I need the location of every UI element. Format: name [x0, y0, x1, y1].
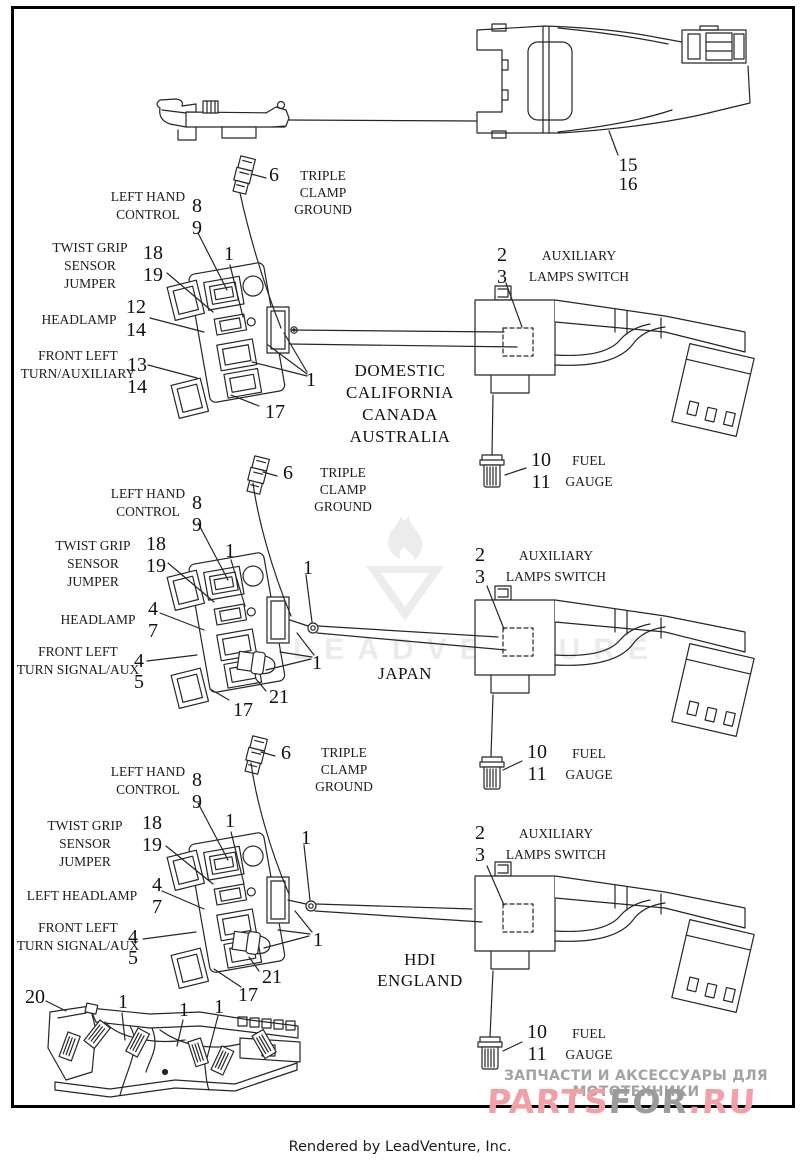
s1-bracket-callout-17: 17 [260, 401, 290, 423]
s3-left-headlamp-label: LEFT HEADLAMP [22, 887, 142, 905]
s2-pin-callout-1-right: 1 [300, 557, 316, 579]
s1-pin-callout-1-top: 1 [221, 243, 237, 265]
s2-left-hand-control-label: LEFT HAND CONTROL [104, 485, 192, 521]
s1-aux-callout-2-3: 2 3 [494, 244, 510, 288]
s2-headlamp-callout-4-7: 4 7 [142, 598, 164, 642]
s3-boot-callout-21: 21 [257, 966, 287, 988]
s2-aux-callout-2-3: 2 3 [472, 544, 488, 588]
logo-for-text: FOR [608, 1082, 690, 1121]
s2-aux-lamps-switch-label: AUXILIARY LAMPS SWITCH [500, 545, 612, 587]
s3-pin-callout-1-far: 1 [310, 929, 326, 951]
clamp-drawing [157, 99, 477, 140]
s2-triple-clamp-ground-callout: 6 [280, 462, 296, 484]
logo-ru-text: .RU [687, 1082, 757, 1121]
s2-headlamp-label: HEADLAMP [55, 611, 141, 629]
s1-control-callout-8-9: 8 9 [189, 195, 205, 239]
s2-turn-label: FRONT LEFT TURN SIGNAL/AUX [14, 643, 142, 679]
s2-jumper-callout-18-19: 18 19 [145, 533, 167, 577]
section-japan-drawing [147, 456, 754, 789]
s1-left-hand-control-label: LEFT HAND CONTROL [104, 188, 192, 224]
s3-aux-lamps-switch-label: AUXILIARY LAMPS SWITCH [500, 823, 612, 865]
s2-twist-grip-label: TWIST GRIP SENSOR JUMPER [49, 537, 137, 591]
s3-headlamp-callout-4-7: 4 7 [146, 874, 168, 918]
s2-turn-callout-4-5: 4 5 [128, 651, 150, 693]
s3-turn-callout-4-5: 4 5 [122, 927, 144, 969]
harness-pin-callout-1-b: 1 [176, 999, 192, 1021]
s2-pin-callout-1-far: 1 [309, 652, 325, 674]
s2-pin-callout-1-top: 1 [222, 540, 238, 562]
s3-region-label: HDI ENGLAND [365, 949, 475, 991]
s1-fuel-callout-10-11: 10 11 [528, 449, 554, 493]
s1-triple-clamp-ground-label: TRIPLE CLAMP GROUND [283, 167, 363, 218]
s1-jumper-callout-18-19: 18 19 [142, 242, 164, 286]
s3-aux-callout-2-3: 2 3 [472, 822, 488, 866]
s3-jumper-callout-18-19: 18 19 [141, 812, 163, 856]
render-credit: Rendered by LeadVenture, Inc. [0, 1139, 800, 1155]
s1-triple-clamp-ground-callout: 6 [266, 164, 282, 186]
harness-pin-callout-1-a: 1 [115, 991, 131, 1013]
s3-pin-callout-1-right: 1 [298, 827, 314, 849]
harness-pin-callout-1-c: 1 [211, 996, 227, 1018]
s1-aux-lamps-switch-label: AUXILIARY LAMPS SWITCH [523, 245, 635, 287]
s3-fuel-gauge-label: FUEL GAUGE [558, 1023, 620, 1065]
s1-region-label: DOMESTIC CALIFORNIA CANADA AUSTRALIA [330, 360, 470, 448]
s3-control-callout-8-9: 8 9 [189, 769, 205, 813]
s2-region-label: JAPAN [355, 663, 455, 685]
s2-bracket-callout-17: 17 [228, 699, 258, 721]
logo-parts-text: PARTS [486, 1082, 611, 1121]
s2-boot-callout-21: 21 [264, 686, 294, 708]
parts-diagram-page: LEADVENTURE [0, 0, 800, 1166]
main-harness-drawing [46, 1001, 300, 1097]
s2-triple-clamp-ground-label: TRIPLE CLAMP GROUND [302, 464, 384, 515]
s2-control-callout-8-9: 8 9 [189, 492, 205, 536]
s3-fuel-callout-10-11: 10 11 [524, 1021, 550, 1065]
harness-callout-15-16: 15 16 [606, 156, 650, 194]
s1-pin-callout-1-right: 1 [303, 369, 319, 391]
s2-fuel-callout-10-11: 10 11 [524, 741, 550, 785]
watermark-partsfor-logo: PARTSFOR.RU [486, 1082, 800, 1121]
s3-left-hand-control-label: LEFT HAND CONTROL [104, 763, 192, 799]
s1-headlamp-callout-12-14: 12 14 [125, 296, 147, 342]
s3-pin-callout-1-top: 1 [222, 810, 238, 832]
s3-triple-clamp-ground-callout: 6 [278, 742, 294, 764]
s1-turn-callout-13-14: 13 14 [126, 354, 148, 398]
s1-headlamp-label: HEADLAMP [36, 311, 122, 329]
s1-fuel-gauge-label: FUEL GAUGE [558, 450, 620, 492]
harness-clip-callout-20: 20 [20, 986, 50, 1008]
s3-triple-clamp-ground-label: TRIPLE CLAMP GROUND [303, 744, 385, 795]
s2-fuel-gauge-label: FUEL GAUGE [558, 743, 620, 785]
s1-turn-label: FRONT LEFT TURN/AUXILIARY [17, 347, 139, 383]
console-top-drawing [477, 24, 750, 155]
s1-twist-grip-label: TWIST GRIP SENSOR JUMPER [46, 239, 134, 293]
s3-twist-grip-label: TWIST GRIP SENSOR JUMPER [41, 817, 129, 871]
